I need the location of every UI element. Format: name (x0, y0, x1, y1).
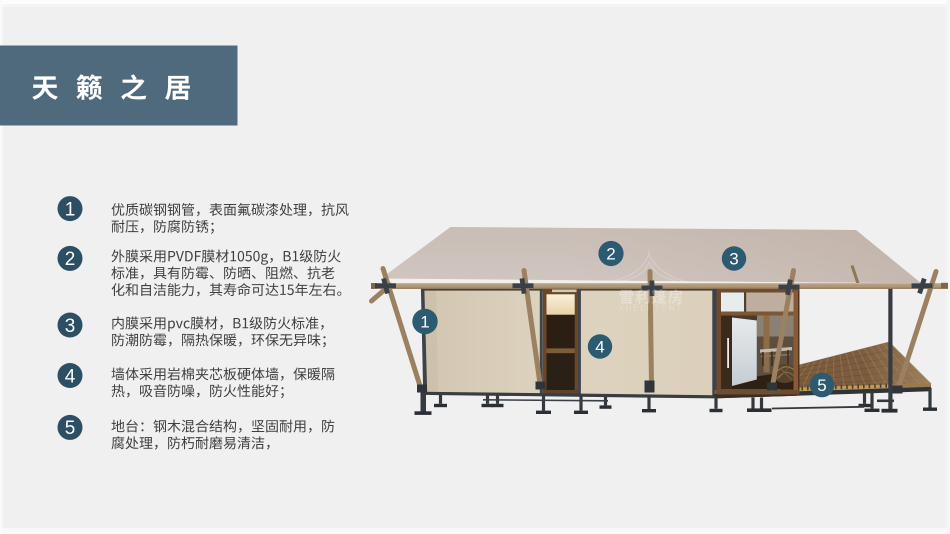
svg-text:XUELI TENT: XUELI TENT (619, 303, 683, 312)
svg-text:2: 2 (606, 245, 615, 264)
svg-text:3: 3 (65, 316, 76, 337)
svg-text:5: 5 (65, 418, 76, 439)
svg-text:5: 5 (817, 376, 826, 395)
svg-text:4: 4 (65, 366, 76, 387)
svg-text:3: 3 (729, 250, 738, 269)
svg-text:4: 4 (595, 338, 604, 357)
svg-text:1: 1 (420, 313, 429, 332)
svg-text:1: 1 (65, 199, 76, 220)
svg-text:2: 2 (65, 249, 76, 270)
